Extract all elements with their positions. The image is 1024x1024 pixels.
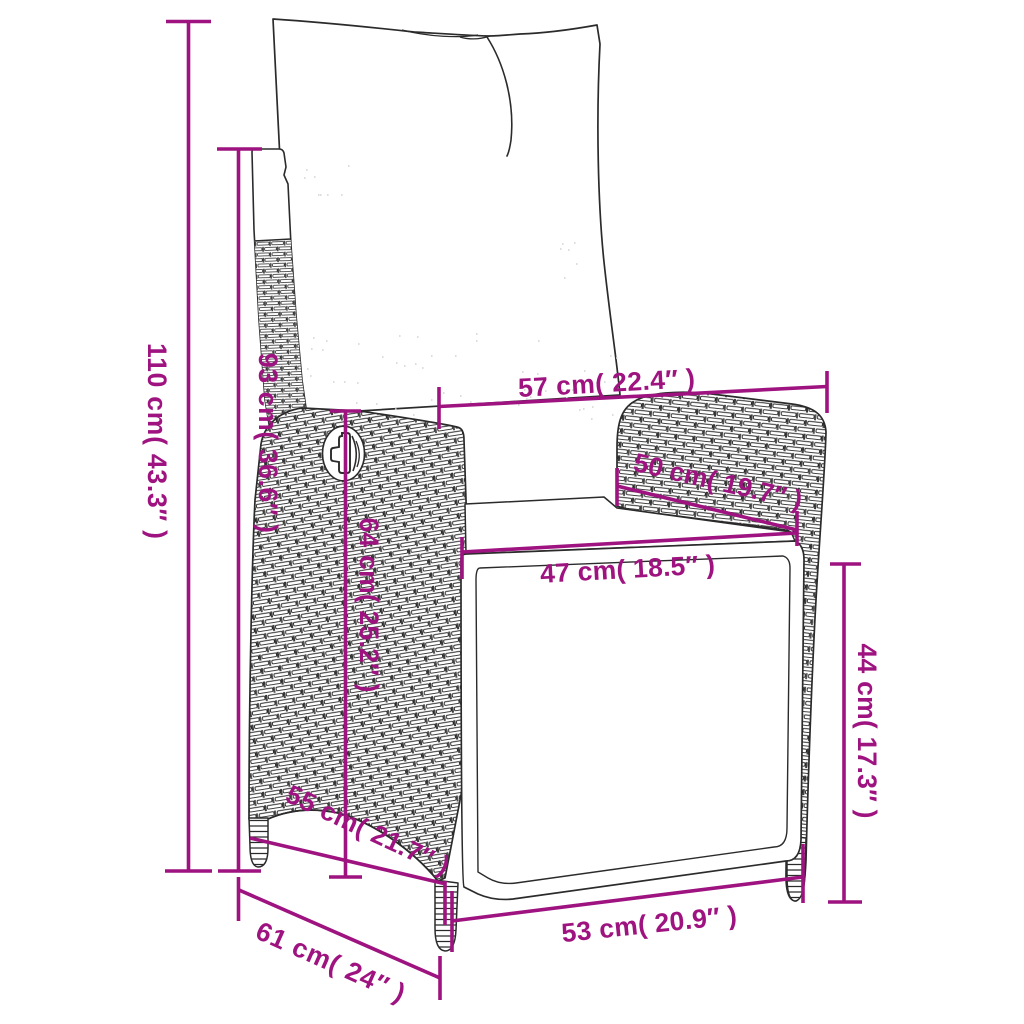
svg-text:64 cm( 25.2″ ): 64 cm( 25.2″ ) xyxy=(354,518,384,693)
svg-text:93 cm( 36.6″ ): 93 cm( 36.6″ ) xyxy=(253,353,283,533)
svg-text:44 cm( 17.3″ ): 44 cm( 17.3″ ) xyxy=(852,644,882,819)
svg-text:110 cm( 43.3″ ): 110 cm( 43.3″ ) xyxy=(142,343,172,539)
